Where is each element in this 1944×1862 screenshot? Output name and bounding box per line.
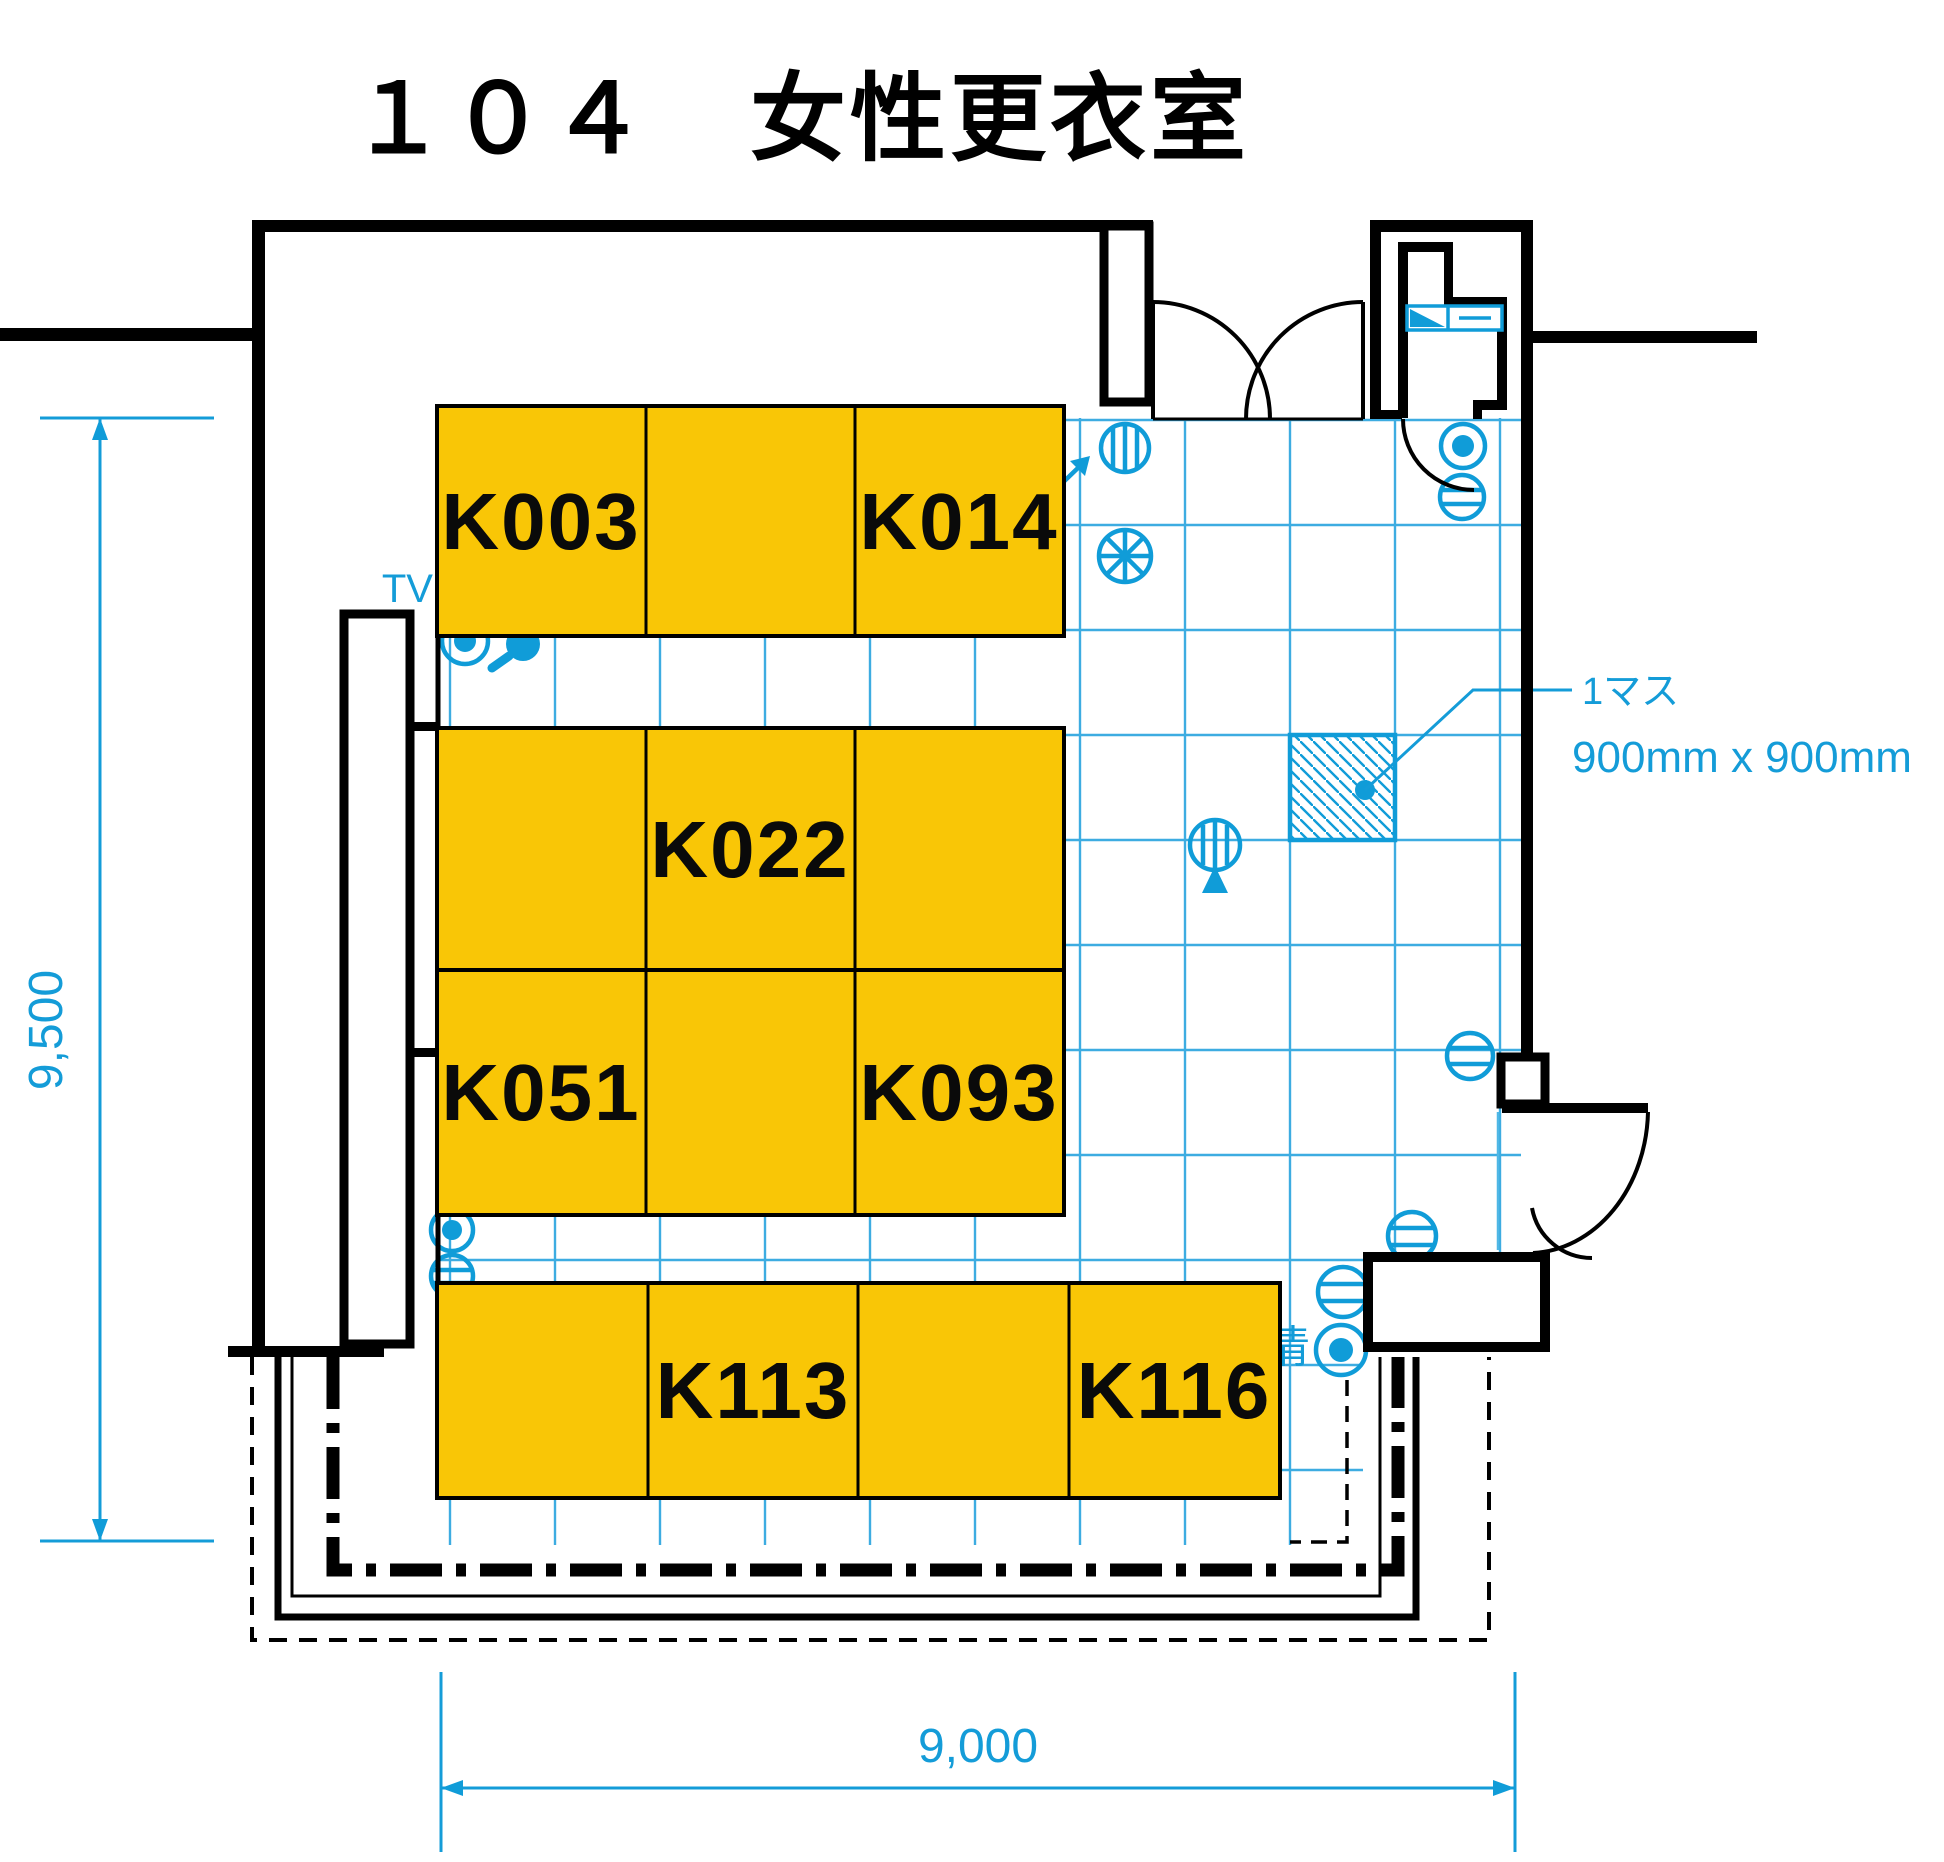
- locker-label-k116: K116: [1077, 1346, 1272, 1435]
- supply-diffuser-icon: [1101, 424, 1149, 472]
- left-partition: [344, 614, 410, 1344]
- br-downlight-icon: [1316, 1325, 1366, 1375]
- grid-note-line1: 1マス: [1582, 671, 1679, 713]
- grid-note-line2: 900mm x 900mm: [1572, 733, 1912, 782]
- wall-block-bottom-right: [1368, 1257, 1545, 1347]
- ceiling-fan-icon: [1099, 530, 1151, 582]
- br-grille-icon-2: [1318, 1267, 1368, 1317]
- locker-label-k003: K003: [441, 477, 640, 566]
- vestibule-downlight-icon: [1441, 424, 1485, 468]
- door-pier-left: [1104, 226, 1149, 402]
- mid-diffuser-icon: [1190, 820, 1240, 870]
- dimension-height-label: 9,500: [20, 970, 73, 1090]
- dimension-width-label: 9,000: [918, 1720, 1038, 1773]
- side-exit-door: [1498, 1108, 1648, 1258]
- page-title: １０４ 女性更衣室: [350, 66, 1250, 173]
- locker-label-k014: K014: [859, 477, 1058, 566]
- double-entry-door: [1153, 302, 1363, 419]
- locker-label-k093: K093: [859, 1048, 1058, 1137]
- locker-label-k051: K051: [441, 1048, 640, 1137]
- door-pier-right: [1501, 1057, 1545, 1104]
- floor-plan-page: １０４ 女性更衣室: [0, 0, 1944, 1862]
- locker-blocks: K003 K014 K022 K051 K093 K113 K116: [437, 406, 1280, 1498]
- locker-label-k022: K022: [650, 805, 849, 894]
- wall-grille-icon: [1447, 1033, 1493, 1079]
- grid-note: 1マス 900mm x 900mm: [1572, 671, 1912, 782]
- locker-label-k113: K113: [656, 1346, 851, 1435]
- tv-label: TV: [382, 567, 433, 611]
- floor-plan-canvas: １０４ 女性更衣室: [0, 0, 1944, 1862]
- vestibule-grille-icon: [1440, 475, 1484, 519]
- dimension-height: 9,500: [20, 418, 214, 1541]
- dimension-width: 9,000: [441, 1672, 1515, 1852]
- wall-panel-icon: [1407, 306, 1502, 330]
